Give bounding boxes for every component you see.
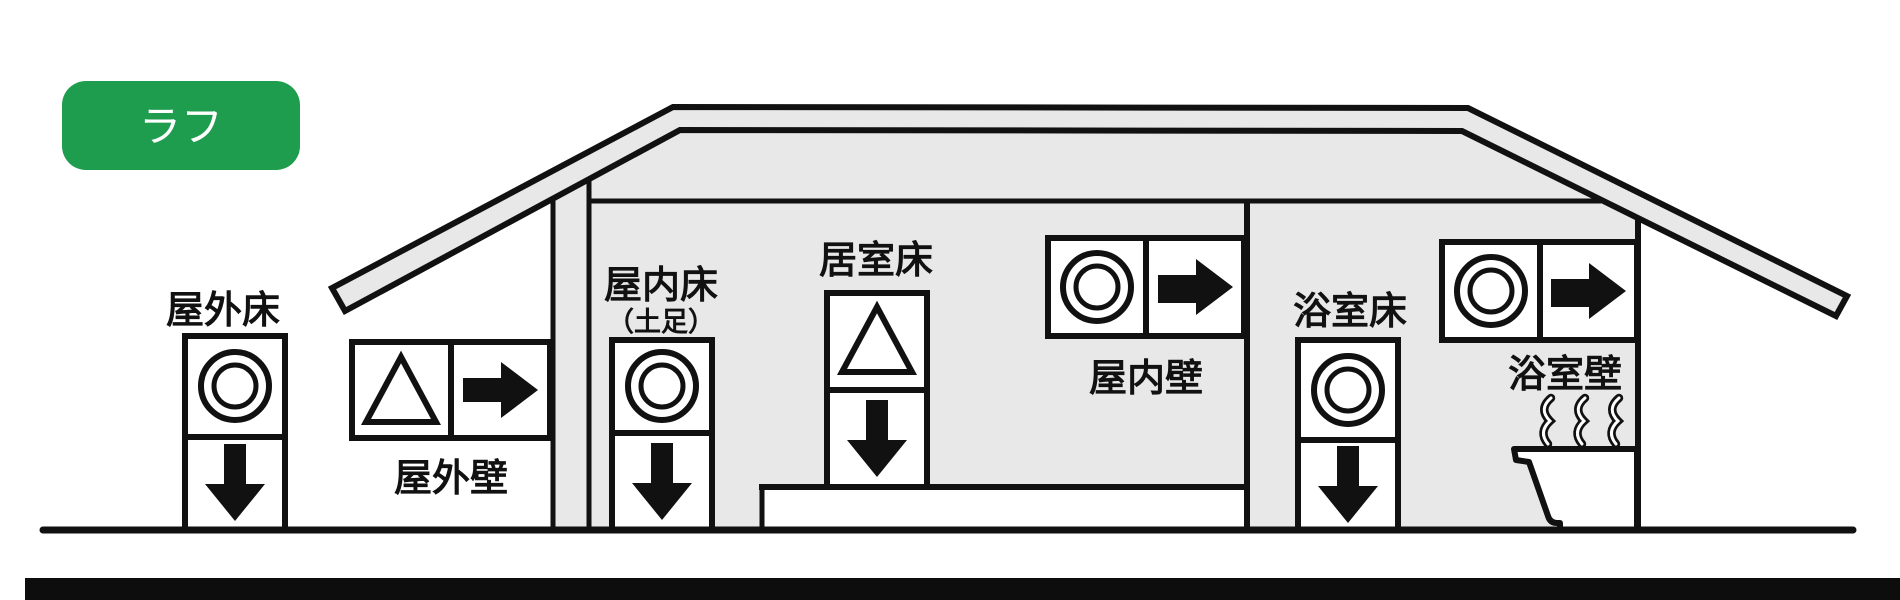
outdoor-floor-item: 屋外床 — [166, 290, 285, 530]
badge-label: ラフ — [139, 103, 223, 150]
living-floor-label: 居室床 — [819, 239, 933, 282]
indoor-floor-label: 屋内床 — [604, 265, 718, 307]
bath-floor-label: 浴室床 — [1293, 290, 1407, 333]
indoor-wall-label: 屋内壁 — [1089, 358, 1203, 400]
house-section-diagram: ラフ 屋外床 — [0, 0, 1900, 600]
outdoor-wall-item: 屋外壁 — [352, 342, 550, 500]
indoor-floor-item: 屋内床 （土足） — [604, 265, 718, 530]
bath-floor-item: 浴室床 — [1293, 290, 1407, 530]
living-floor-item: 居室床 — [819, 239, 933, 487]
rough-badge[interactable]: ラフ — [62, 81, 300, 170]
diagram-canvas: ラフ 屋外床 — [0, 0, 1900, 600]
outdoor-wall-label: 屋外壁 — [394, 458, 508, 500]
outdoor-floor-label: 屋外床 — [166, 290, 280, 332]
bath-wall-label: 浴室壁 — [1508, 353, 1622, 396]
bottom-bar — [25, 578, 1900, 600]
indoor-floor-note: （土足） — [607, 307, 715, 337]
